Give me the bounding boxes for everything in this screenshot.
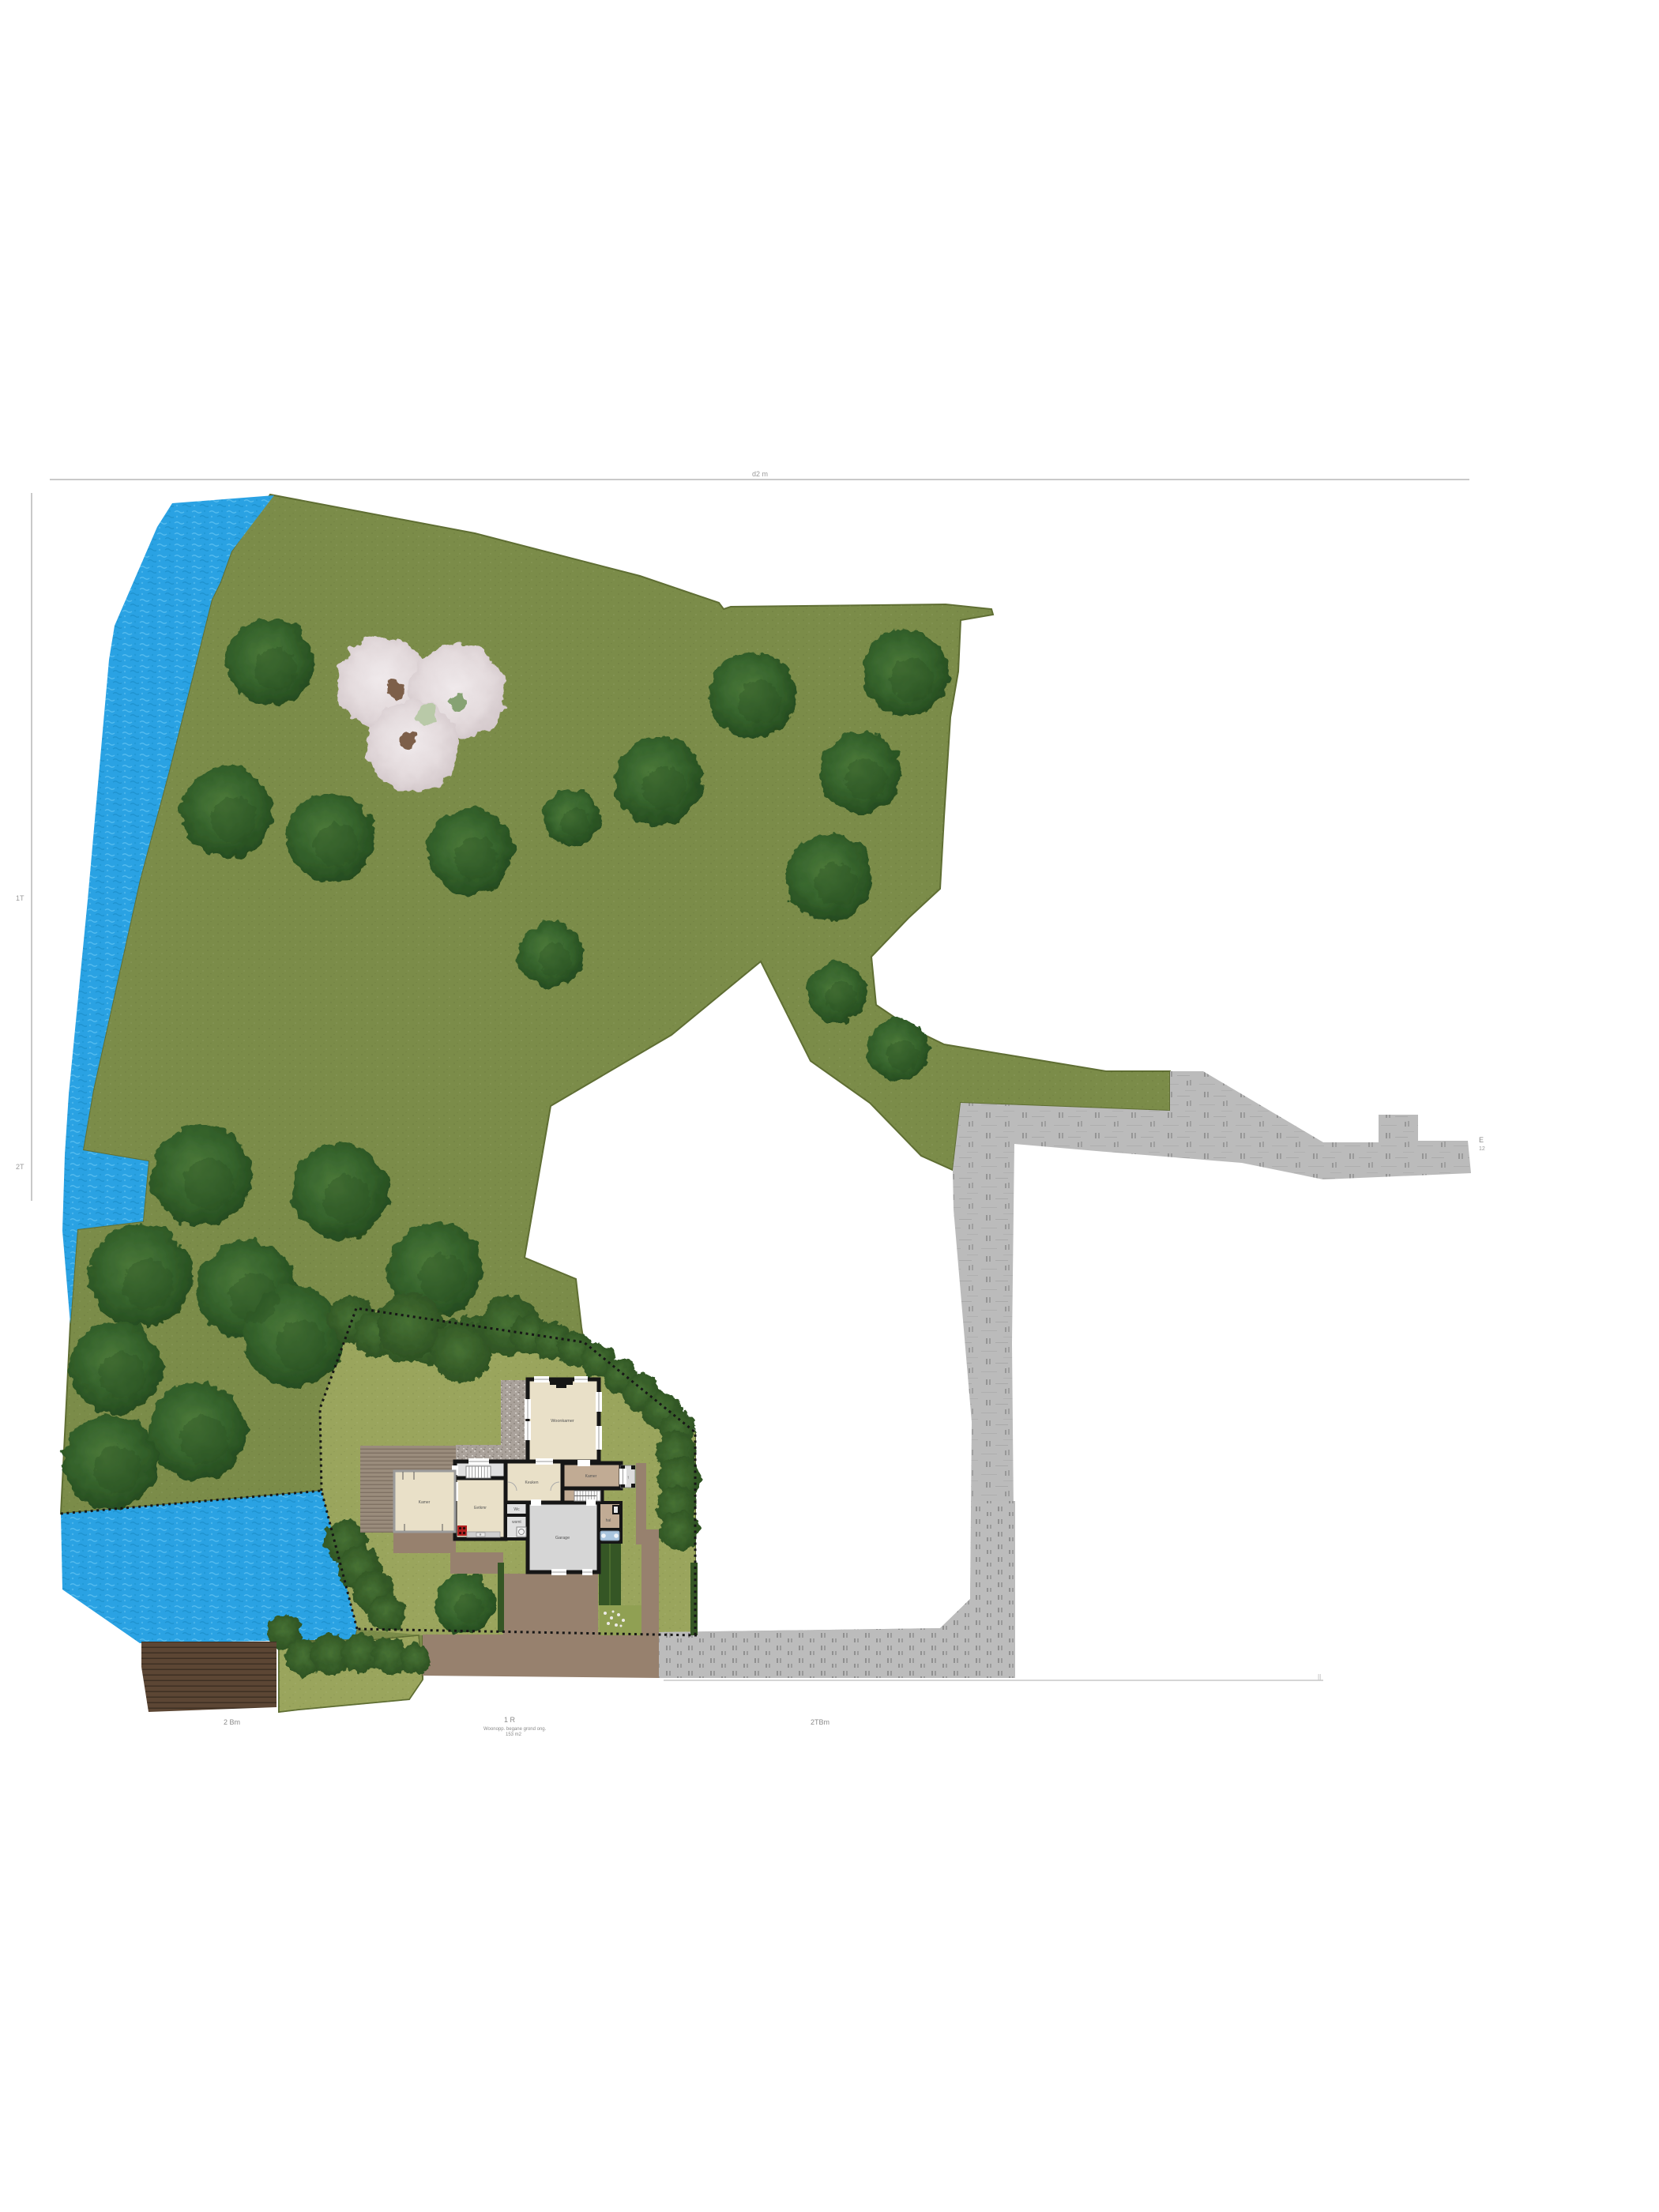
svg-text:Kamer: Kamer [585, 1474, 597, 1479]
svg-text:2TBm: 2TBm [811, 1718, 829, 1726]
svg-text:E: E [1479, 1136, 1484, 1144]
svg-text:Woonopp. begane grond ong.: Woonopp. begane grond ong. [483, 1727, 547, 1732]
svg-text:2T: 2T [16, 1163, 24, 1171]
svg-text:2 Bm: 2 Bm [224, 1718, 240, 1726]
svg-text:Eetkmr: Eetkmr [474, 1506, 487, 1510]
svg-text:||: || [1318, 1673, 1321, 1680]
svg-text:wsmt: wsmt [512, 1520, 521, 1525]
svg-text:Kamer: Kamer [419, 1500, 431, 1505]
svg-text:d2 m: d2 m [752, 470, 768, 478]
svg-text:1T: 1T [16, 894, 24, 902]
svg-text:153 m2: 153 m2 [506, 1732, 522, 1737]
svg-text:Garage: Garage [555, 1536, 570, 1540]
svg-text:12: 12 [1479, 1146, 1485, 1152]
svg-text:1 R: 1 R [504, 1716, 516, 1724]
svg-text:Wc: Wc [513, 1507, 520, 1512]
svg-text:Woonkamer: Woonkamer [551, 1419, 574, 1424]
svg-text:↑: ↑ [627, 1476, 630, 1480]
svg-text:hal: hal [606, 1518, 611, 1523]
svg-text:Keuken: Keuken [525, 1480, 539, 1485]
